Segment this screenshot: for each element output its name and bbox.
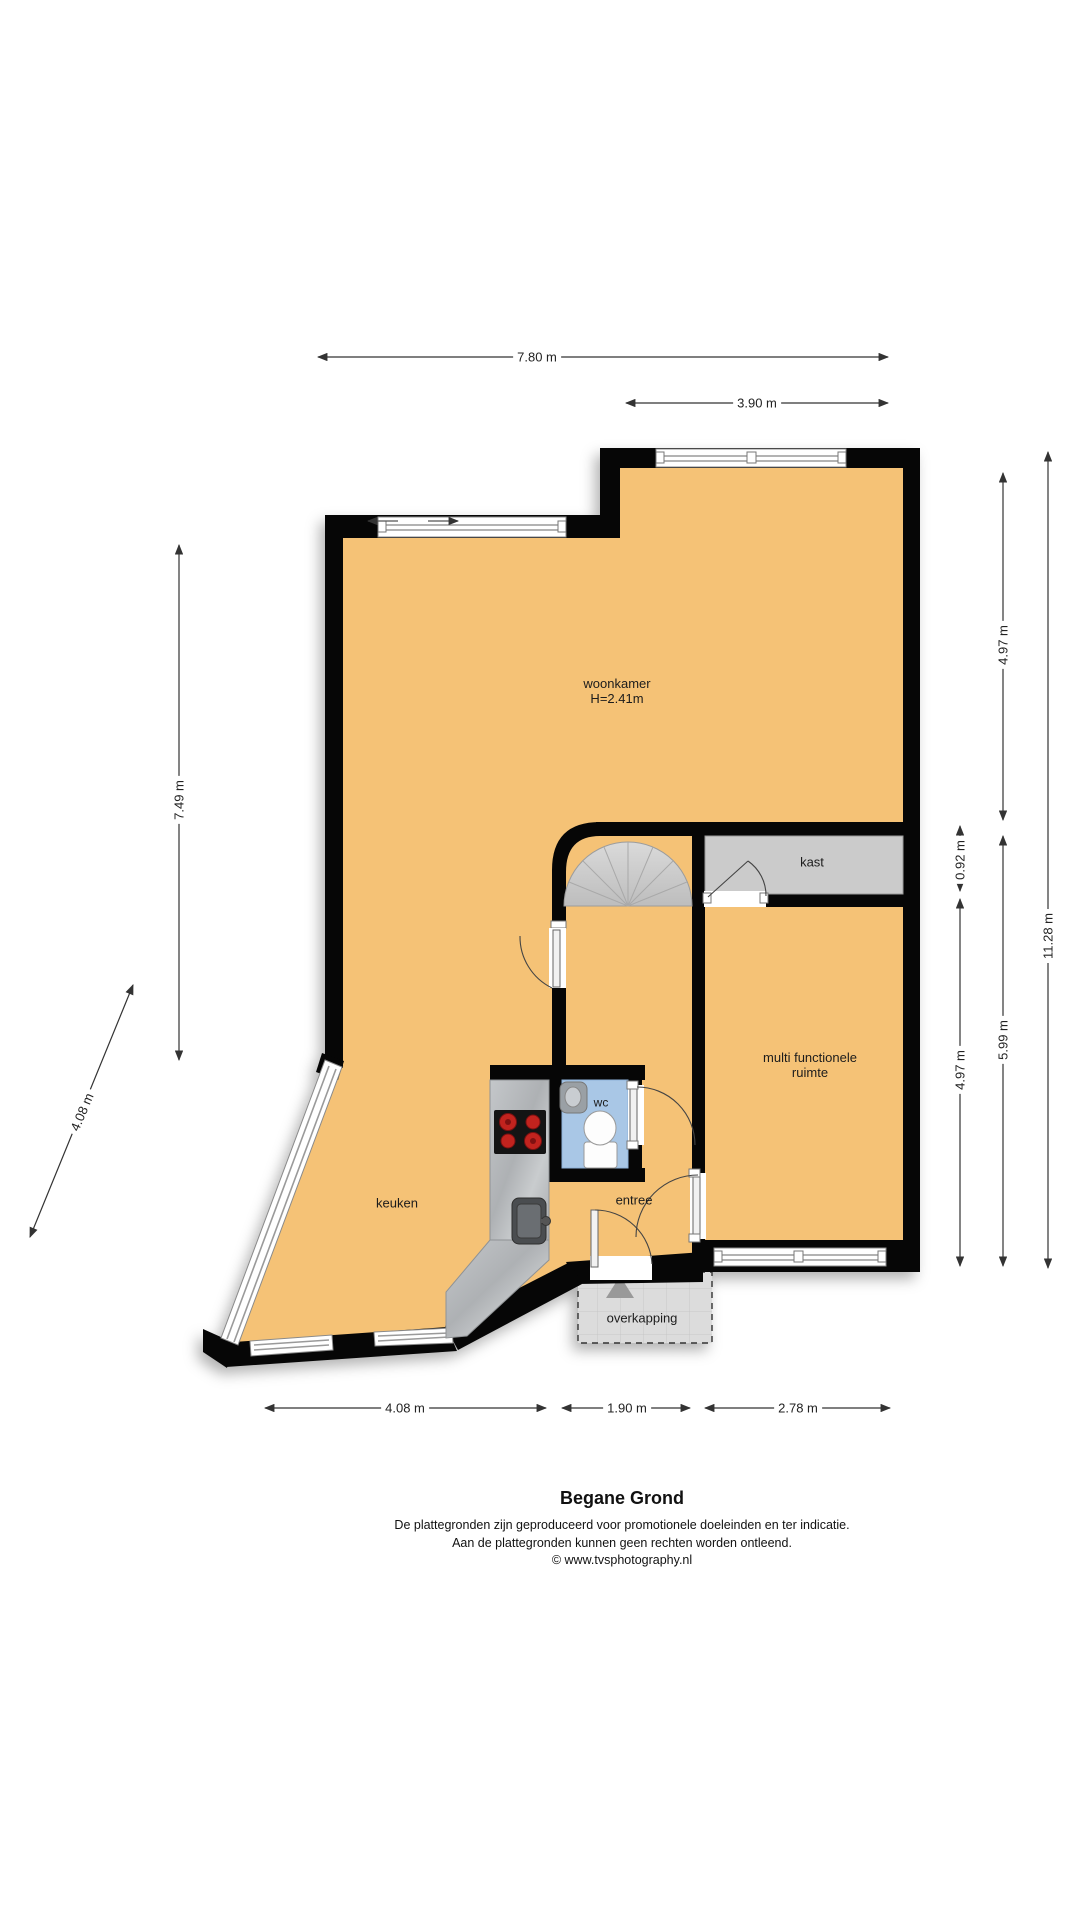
floorplan-page: woonkamer H=2.41m kast multi functionele… <box>0 0 1080 1920</box>
dim-bottom-middle: 1.90 m <box>603 1401 651 1416</box>
dim-bottom-left: 4.08 m <box>381 1401 429 1416</box>
label-woonkamer: woonkamer H=2.41m <box>583 676 650 706</box>
room-name: woonkamer <box>583 676 650 691</box>
dim-mfr-height: 4.97 m <box>953 1046 968 1094</box>
label-entree: entree <box>616 1193 653 1208</box>
dim-left-wall: 7.49 m <box>172 776 187 824</box>
window-top-left <box>378 517 566 537</box>
disclaimer-line-1: De plattegronden zijn geproduceerd voor … <box>394 1517 849 1535</box>
label-mfr: multi functionele ruimte <box>763 1050 857 1080</box>
label-wc: wc <box>594 1096 609 1111</box>
wc-room <box>560 1080 628 1168</box>
floorplan-canvas <box>0 0 1080 1920</box>
page-title: Begane Grond <box>394 1488 849 1509</box>
label-keuken: keuken <box>376 1196 418 1211</box>
door-front <box>590 1256 652 1280</box>
dim-top-right: 3.90 m <box>733 396 781 411</box>
dim-top-total: 7.80 m <box>513 350 561 365</box>
dim-right-total: 11.28 m <box>1041 909 1056 963</box>
room-name: multi functionele <box>763 1050 857 1065</box>
label-overkapping: overkapping <box>607 1311 678 1326</box>
label-kast: kast <box>800 855 824 870</box>
copyright: © www.tvsphotography.nl <box>394 1552 849 1570</box>
toilet-icon <box>584 1111 617 1168</box>
dim-right-upper: 4.97 m <box>996 621 1011 669</box>
building <box>203 448 920 1368</box>
kitchen-sink-icon <box>512 1198 551 1244</box>
ceiling-height: H=2.41m <box>583 691 650 706</box>
dim-kast-depth: 0.92 m <box>953 836 968 884</box>
footer: Begane Grond De plattegronden zijn gepro… <box>394 1488 849 1570</box>
dim-right-lower: 5.99 m <box>996 1016 1011 1064</box>
dim-bottom-right: 2.78 m <box>774 1401 822 1416</box>
disclaimer-line-2: Aan de plattegronden kunnen geen rechten… <box>394 1535 849 1553</box>
room-name: ruimte <box>763 1065 857 1080</box>
stove-icon <box>494 1110 546 1154</box>
door-kast <box>704 891 766 907</box>
